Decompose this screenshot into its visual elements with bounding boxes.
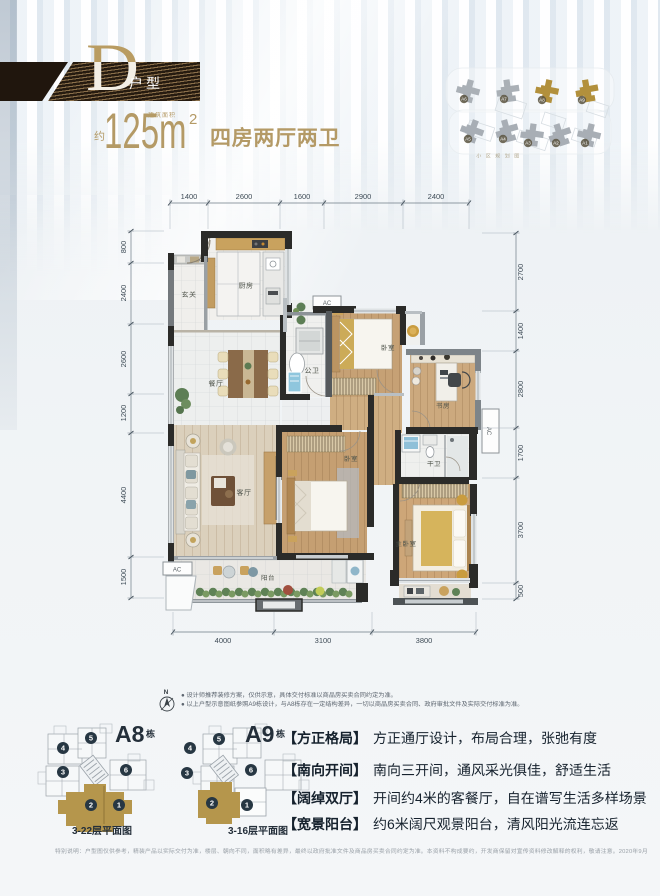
svg-text:1: 1 [117,801,121,810]
svg-text:3: 3 [61,768,65,777]
svg-text:特别说明：户型图仅供参考，精装产品以实际交付为准，楼层、朝向: 特别说明：户型图仅供参考，精装产品以实际交付为准，楼层、朝向不同，面积略有差异，… [55,848,648,855]
svg-text:公卫: 公卫 [305,367,320,375]
svg-text:● 设计师推荐装修方案，仅供示意，具体交付标准以商品房买卖合: ● 设计师推荐装修方案，仅供示意，具体交付标准以商品房买卖合同约定为准。 [181,691,397,699]
svg-text:● 以上户型示意图纸参照A9栋设计，与A8栋存在一定结构差异: ● 以上户型示意图纸参照A9栋设计，与A8栋存在一定结构差异，一切以商品房买卖合… [181,700,523,708]
svg-text:A8: A8 [115,721,145,747]
svg-text:A3: A3 [525,141,531,146]
svg-text:卧室: 卧室 [344,455,358,463]
svg-text:3800: 3800 [416,636,433,645]
svg-text:阳台: 阳台 [261,574,275,582]
svg-text:小区规划图: 小区规划图 [476,153,524,160]
svg-text:A5: A5 [465,137,471,142]
svg-text:6: 6 [124,766,128,775]
svg-text:A1: A1 [582,141,588,146]
svg-text:2400: 2400 [119,285,128,302]
svg-text:2600: 2600 [236,192,253,201]
svg-text:卧室: 卧室 [381,344,395,352]
svg-text:2600: 2600 [119,351,128,368]
svg-text:玄关: 玄关 [182,291,197,299]
svg-text:A6: A6 [461,97,467,102]
svg-text:1500: 1500 [119,569,128,586]
svg-text:2: 2 [89,801,93,810]
svg-text:客厅: 客厅 [237,489,252,497]
svg-text:3-16层平面图: 3-16层平面图 [228,825,288,837]
svg-text:1400: 1400 [181,192,198,201]
svg-text:2800: 2800 [516,381,525,398]
svg-text:1: 1 [245,801,249,810]
svg-text:A7: A7 [501,97,507,102]
svg-text:500: 500 [516,585,525,598]
svg-text:餐厅: 餐厅 [209,380,224,388]
svg-text:2900: 2900 [355,192,372,201]
svg-text:主卧室: 主卧室 [396,540,417,548]
svg-text:【宽景阳台】约6米阔尺观景阳台，清风阳光流连忘返: 【宽景阳台】约6米阔尺观景阳台，清风阳光流连忘返 [283,816,619,832]
svg-text:干卫: 干卫 [427,461,441,468]
svg-text:【南向开间】南向三开间，通风采光俱佳，舒适生活: 【南向开间】南向三开间，通风采光俱佳，舒适生活 [283,762,611,778]
svg-text:3-22层平面图: 3-22层平面图 [72,825,132,837]
svg-text:【阔绰双厅】开间约4米的客餐厅，自在谱写生活多样场景: 【阔绰双厅】开间约4米的客餐厅，自在谱写生活多样场景 [283,790,647,806]
svg-text:厨房: 厨房 [239,282,254,290]
svg-text:4400: 4400 [119,487,128,504]
svg-text:【方正格局】方正通厅设计，布局合理，张弛有度: 【方正格局】方正通厅设计，布局合理，张弛有度 [283,730,597,746]
svg-text:2: 2 [210,799,214,808]
svg-text:1700: 1700 [516,445,525,462]
svg-text:A2: A2 [553,141,559,146]
svg-text:6: 6 [249,766,253,775]
svg-text:2400: 2400 [428,192,445,201]
svg-text:A4: A4 [500,137,506,142]
svg-text:A8: A8 [539,98,545,103]
svg-text:1400: 1400 [516,323,525,340]
svg-text:3700: 3700 [516,522,525,539]
svg-text:2700: 2700 [516,264,525,281]
svg-text:4000: 4000 [215,636,232,645]
svg-text:1200: 1200 [119,405,128,422]
svg-text:栋: 栋 [145,729,155,739]
svg-text:3: 3 [185,769,189,778]
svg-text:书房: 书房 [436,402,450,410]
svg-text:N: N [164,689,169,696]
svg-text:5: 5 [89,734,93,743]
svg-text:AC: AC [173,568,182,574]
svg-text:5: 5 [217,735,221,744]
svg-text:1600: 1600 [294,192,311,201]
svg-text:3100: 3100 [315,636,332,645]
svg-text:800: 800 [119,241,128,254]
svg-text:A9: A9 [245,721,274,747]
svg-text:A9: A9 [579,98,585,103]
